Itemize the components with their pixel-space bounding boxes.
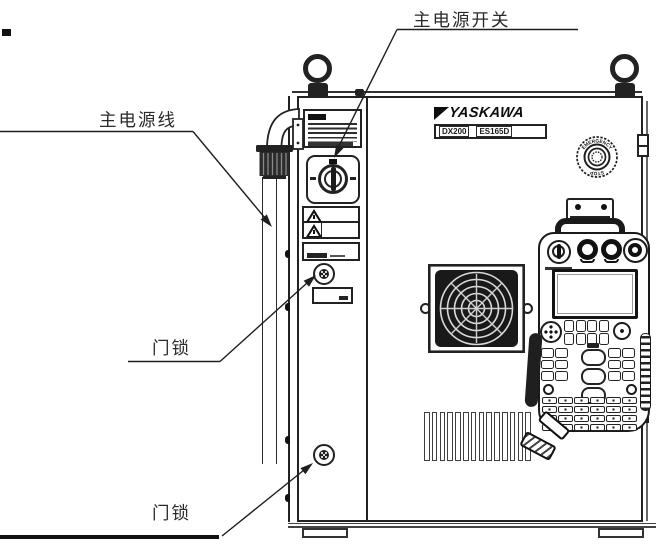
model-secondary: ES165D [476,126,512,138]
switch-handle-bar [331,167,336,191]
slat-element [510,412,516,461]
keypad-left-grid [541,348,568,381]
bkey-element [574,415,589,422]
slat-element [463,412,469,461]
pkey-element [541,371,554,381]
slat-element [424,412,430,461]
pendant-button-1 [577,239,598,260]
brand-flag-icon [434,107,449,120]
door-lock-upper [313,263,335,285]
pkey-element [555,348,568,358]
bkey-element [622,397,637,404]
pkey-element [599,320,609,332]
bkey-element [574,406,589,413]
bkey-element [606,406,621,413]
bkey-element [590,406,605,413]
lock-plate [312,287,353,304]
bkey-element [590,397,605,404]
key-slot [557,244,561,259]
base-line-1 [288,523,656,525]
switch-tick-left [310,177,316,180]
bkey-element [606,424,621,431]
slat-element [479,412,485,461]
hinge-bump [285,250,290,258]
pkey-element [599,333,609,345]
leader-main-power-cable [0,132,265,219]
round-key-left [543,384,554,395]
pkey-element [564,320,574,332]
top-screw [355,89,364,96]
main-power-switch [306,155,360,204]
button-2-base [604,259,619,263]
round-key-right [626,384,637,395]
pkey-element [608,348,621,358]
brand-logo-text: YASKAWA [448,105,525,121]
pendant-grip-right [640,333,651,411]
cooling-fan [428,264,525,353]
door-divider-line [366,98,368,520]
pendant-button-2 [601,239,622,260]
bkey-element [574,424,589,431]
lock-cylinder [319,450,329,460]
info-label-text-bar [307,253,327,258]
callout-door-lock-upper: 门锁 [152,335,191,360]
button-1-base [580,259,595,263]
pkey-element [622,360,635,370]
slat-element [440,412,446,461]
foot-left [302,528,348,538]
hinge-bump [285,303,290,311]
nameplate-logo-bar [308,114,326,120]
lock-plate-mark [339,296,348,300]
info-label [302,242,360,261]
pkey-element [564,333,574,345]
slat-element [471,412,477,461]
callout-main-power-switch: 主电源开关 [413,7,511,32]
door-hinge-top [637,134,649,157]
screen-inner-frame [557,274,633,314]
pkey-element [541,360,554,370]
warning-triangle-icon [306,224,322,237]
pendant-estop-button [623,238,648,263]
cabinet-estop-button: EMERGENCY STOP [575,135,619,179]
warning-label [302,206,360,239]
pill-element [581,368,606,385]
callout-door-lock-lower: 门锁 [152,500,191,525]
warning-row-2 [304,223,358,237]
keypad-top-grid [564,320,609,345]
select-key [613,322,631,340]
bkey-element [590,424,605,431]
figure-canvas: 主电源开关 主电源线 门锁 门锁 [0,0,664,548]
bracket-screw [601,204,607,210]
bkey-element [622,424,637,431]
eyebolt-right [610,54,639,83]
pkey-element [622,348,635,358]
model-primary: DX200 [439,126,469,138]
programming-pendant [528,195,662,465]
keypad-center-pills [581,349,606,404]
cabinet-top-lip [292,91,642,93]
door-lock-lower [313,444,335,466]
pkey-element [622,371,635,381]
brand-logo: YASKAWA [434,104,544,122]
bkey-element [558,406,573,413]
pkey-element [587,320,597,332]
pkey-element [555,371,568,381]
bkey-element [542,397,557,404]
vent-grille [424,412,531,461]
eyebolt-left-base [308,83,328,96]
pkey-element [576,333,586,345]
bkey-element [558,415,573,422]
slat-element [486,412,492,461]
slat-element [455,412,461,461]
slat-element [494,412,500,461]
slat-element [502,412,508,461]
pkey-element [608,360,621,370]
bkey-element [606,397,621,404]
bkey-element [590,415,605,422]
switch-top-marker [329,159,337,164]
switch-tick-right [350,177,356,180]
bracket-screw [575,204,581,210]
hinge-bump [285,436,290,444]
warning-row-1 [304,208,358,223]
pkey-element [576,320,586,332]
bkey-element [622,406,637,413]
hinge-pin-line [639,145,647,147]
pkey-element [541,348,554,358]
callout-main-power-cable: 主电源线 [99,107,177,132]
pendant-screen [552,269,638,319]
bkey-element [622,415,637,422]
slat-element [447,412,453,461]
bkey-element [574,397,589,404]
pendant-estop-inner [628,243,642,257]
bkey-element [606,415,621,422]
cursor-dpad [540,321,562,343]
page-edge-mark [2,29,11,36]
bkey-element [558,397,573,404]
foot-right [598,528,644,538]
pkey-element [555,360,568,370]
info-label-text-line [330,255,345,257]
lock-cylinder [319,269,329,279]
pkey-element [608,371,621,381]
eyebolt-right-base [615,83,635,96]
pill-element [581,349,606,366]
model-label-box: DX200 ES165D [434,124,547,139]
pendant-key-switch [547,240,571,264]
nameplate-bottom-bar [308,142,353,146]
main-power-cable [262,177,277,464]
slat-element [432,412,438,461]
nameplate-text-lines [308,123,357,142]
hinge-bump [285,494,290,502]
center-tab [587,343,599,348]
keypad-right-grid [608,348,635,381]
rating-nameplate [303,109,362,148]
warning-triangle-icon [306,209,322,222]
eyebolt-left [303,54,332,83]
